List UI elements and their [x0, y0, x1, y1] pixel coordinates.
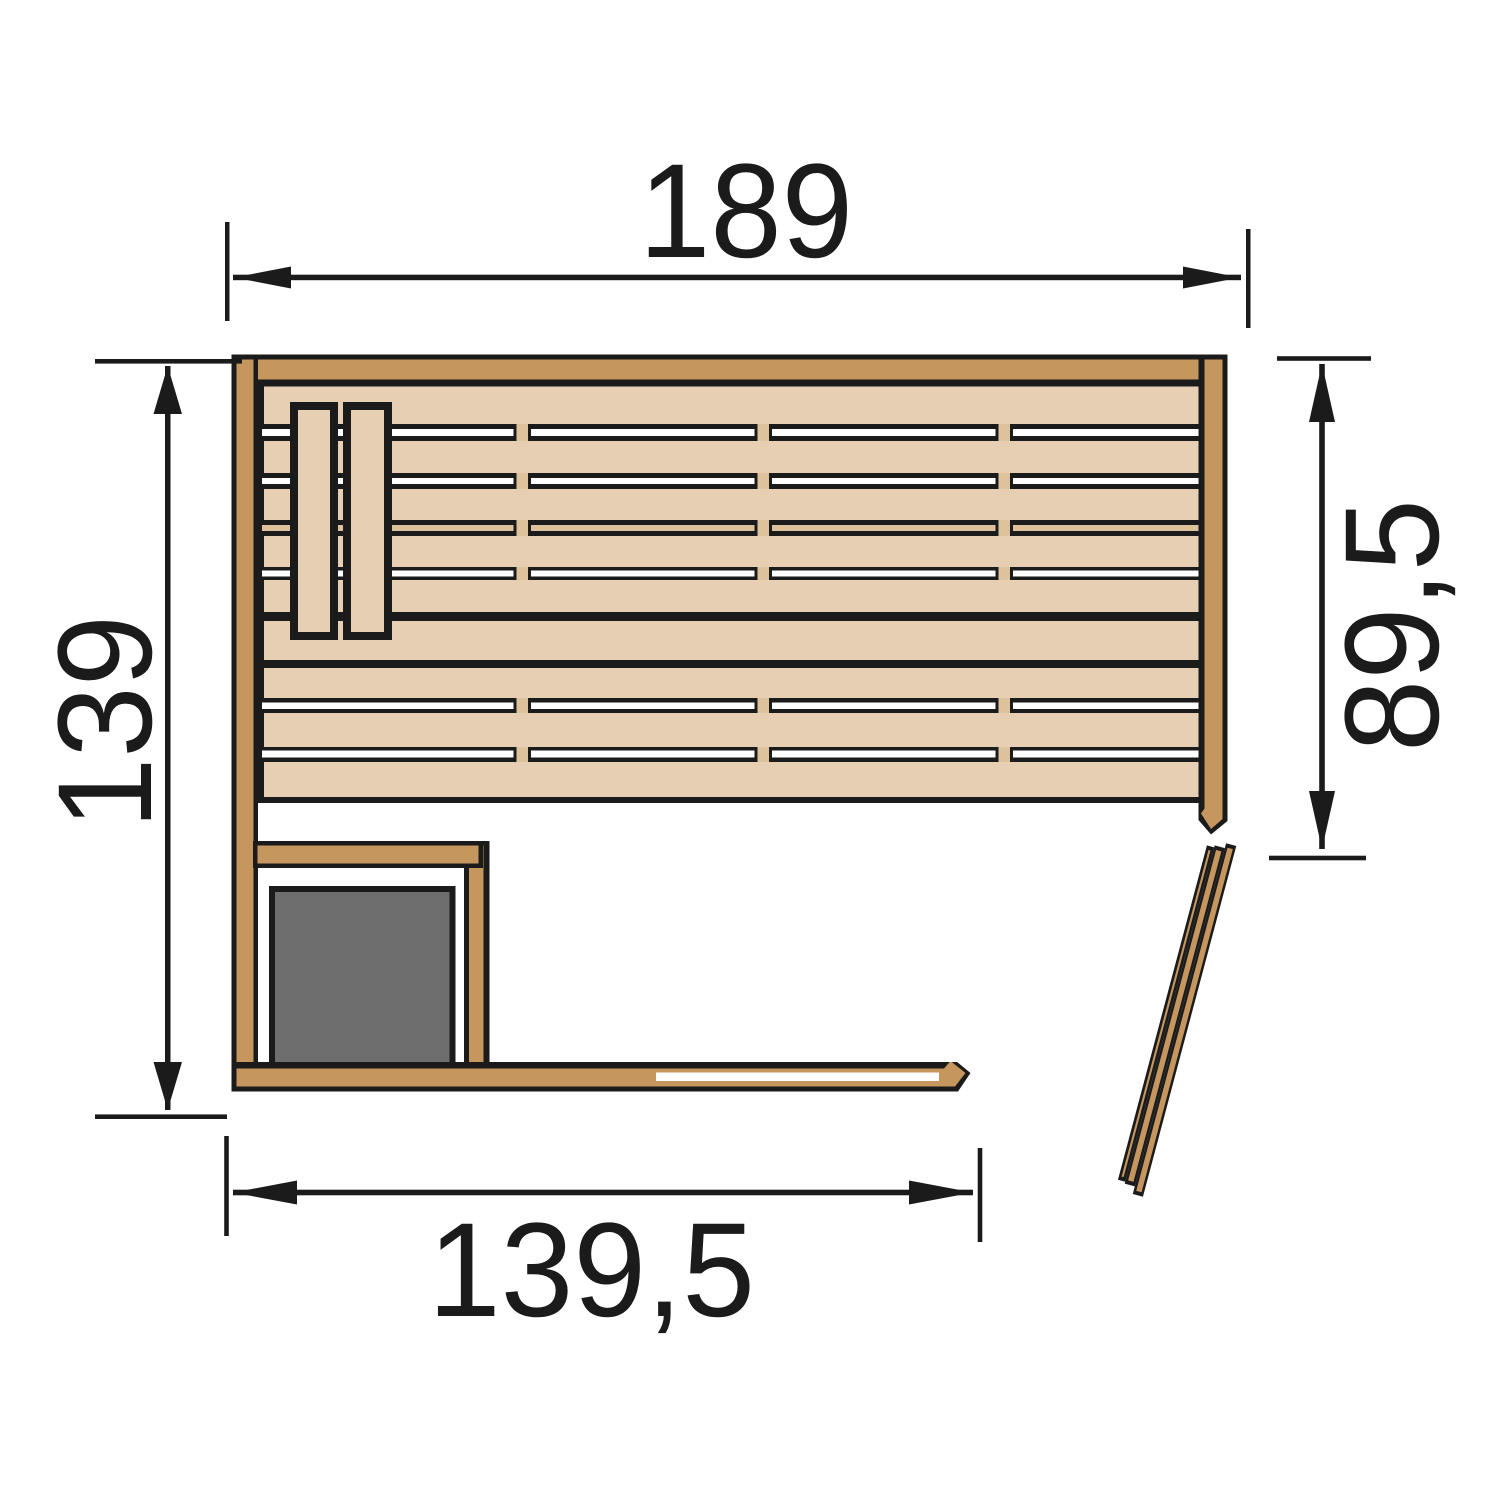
svg-text:139: 139 [31, 615, 180, 829]
svg-text:89,5: 89,5 [1318, 499, 1467, 752]
svg-text:139,5: 139,5 [428, 1196, 755, 1345]
svg-text:189: 189 [639, 137, 853, 286]
